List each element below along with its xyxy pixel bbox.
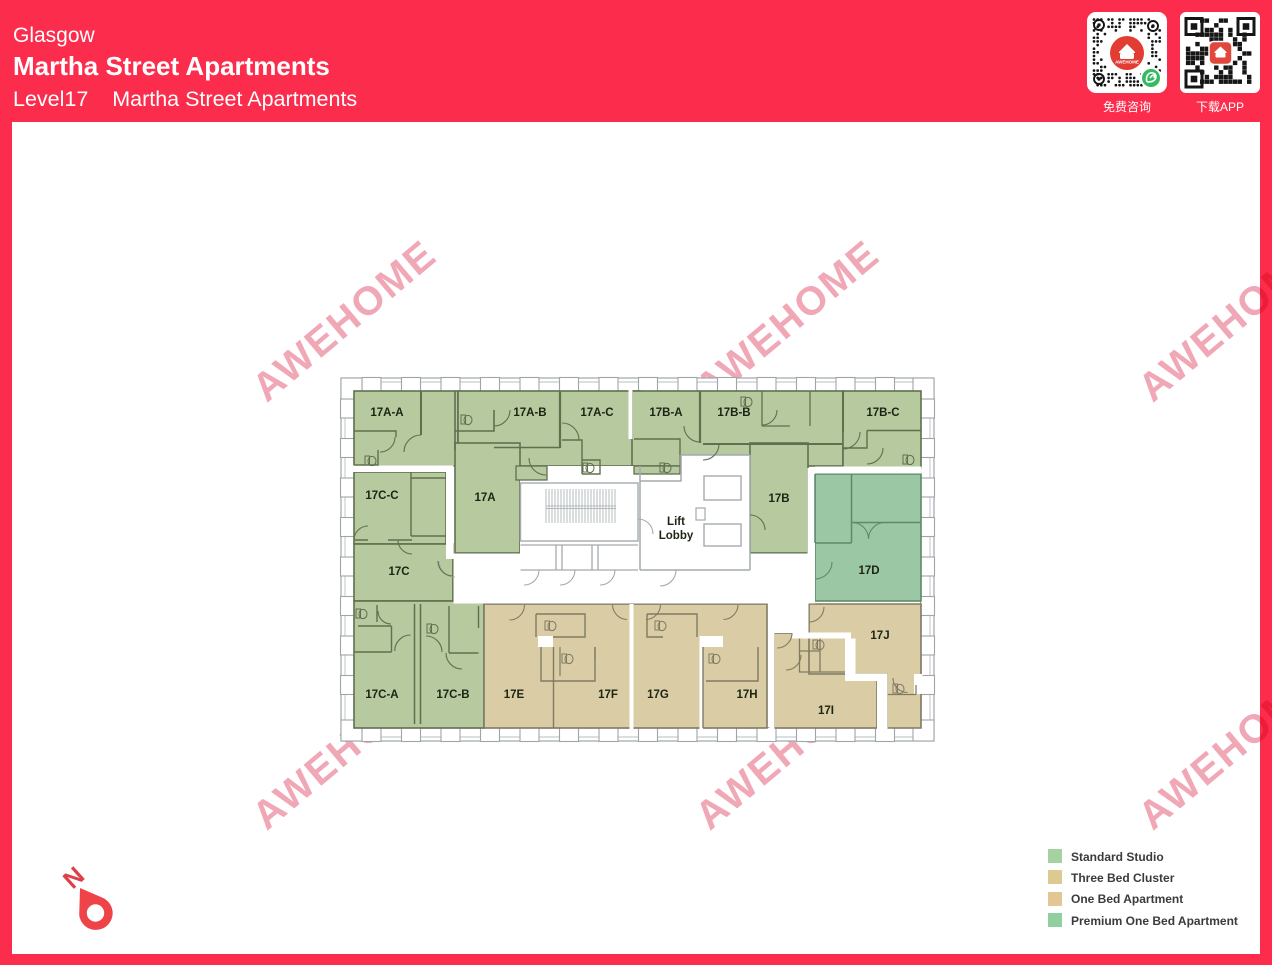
svg-text:17C-A: 17C-A <box>365 689 398 701</box>
svg-text:N: N <box>58 862 90 895</box>
svg-text:17J: 17J <box>870 630 889 642</box>
svg-text:17D: 17D <box>858 565 879 577</box>
svg-text:17B-C: 17B-C <box>866 407 899 419</box>
svg-text:17A-B: 17A-B <box>513 407 546 419</box>
svg-text:17C-C: 17C-C <box>365 490 398 502</box>
svg-text:17F: 17F <box>598 689 618 701</box>
svg-text:17A-A: 17A-A <box>370 407 403 419</box>
svg-text:17B: 17B <box>768 493 789 505</box>
svg-text:17H: 17H <box>736 689 757 701</box>
svg-text:Lobby: Lobby <box>659 530 694 542</box>
svg-text:17C-B: 17C-B <box>436 689 469 701</box>
svg-text:17B-B: 17B-B <box>717 407 750 419</box>
svg-text:17A: 17A <box>474 492 495 504</box>
svg-text:17B-A: 17B-A <box>649 407 682 419</box>
svg-text:17I: 17I <box>818 705 834 717</box>
svg-text:17E: 17E <box>504 689 525 701</box>
svg-text:AWEHOME: AWEHOME <box>1115 60 1139 65</box>
svg-text:17A-C: 17A-C <box>580 407 613 419</box>
svg-text:17C: 17C <box>388 566 409 578</box>
svg-text:17G: 17G <box>647 689 669 701</box>
svg-text:Lift: Lift <box>667 516 685 528</box>
